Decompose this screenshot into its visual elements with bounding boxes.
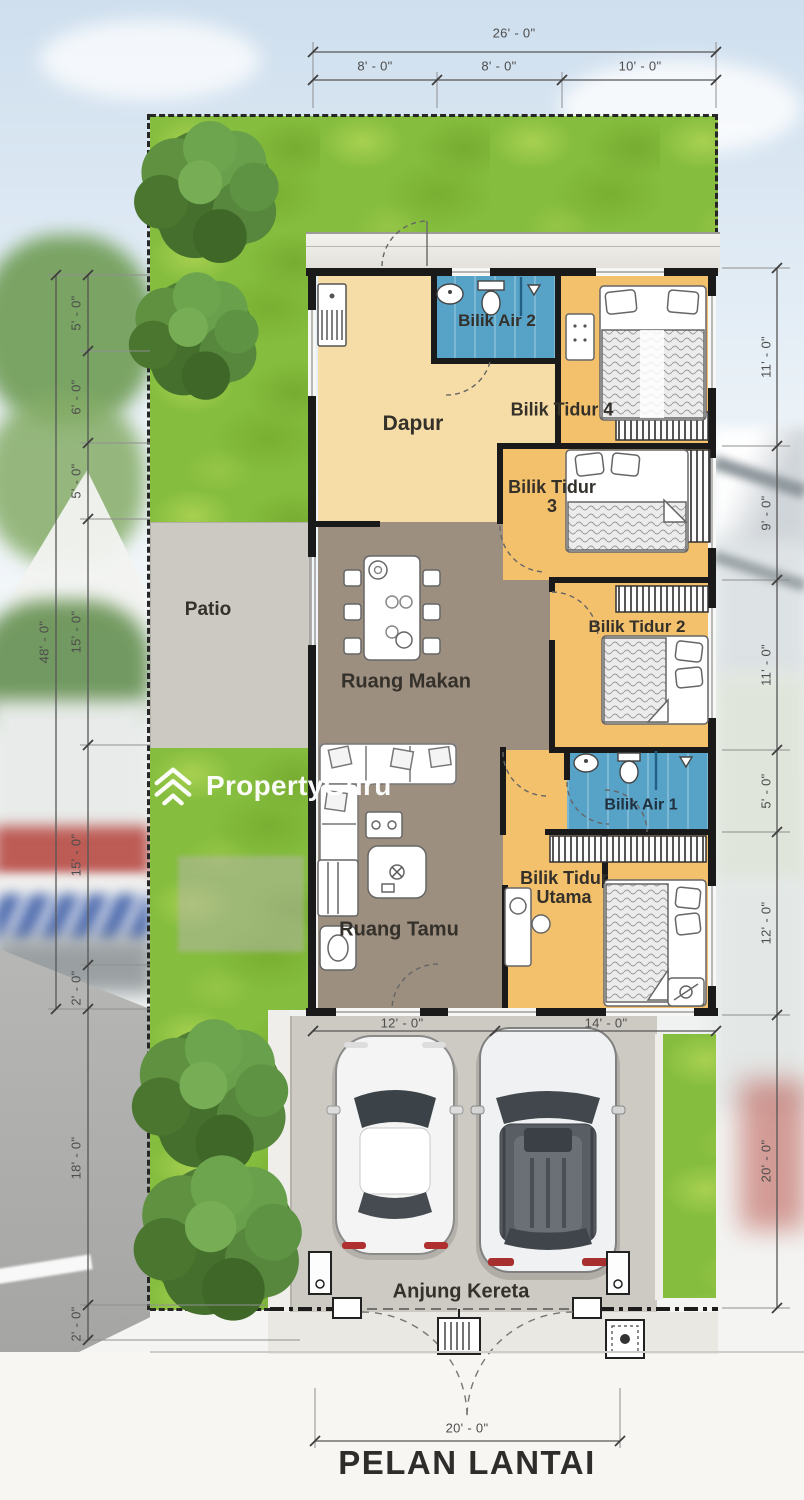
label-bilik-tidur-utama-line1: Bilik Tidur	[520, 869, 608, 888]
dim-bottom-2: 14' - 0"	[585, 1016, 628, 1031]
dim-left-lower-2: 2' - 0"	[69, 1306, 84, 1341]
dim-left-3: 5' - 0"	[69, 463, 84, 498]
floor-plan-image: 26' - 0" 8' - 0" 8' - 0" 10' - 0" 48' - …	[0, 0, 804, 1500]
label-bilik-tidur-3-line2: 3	[508, 497, 596, 516]
dim-top-3: 10' - 0"	[619, 59, 662, 74]
label-bilik-tidur-utama-line2: Utama	[520, 888, 608, 907]
dim-left-5: 15' - 0"	[69, 834, 84, 877]
dim-left-1: 5' - 0"	[69, 295, 84, 330]
dim-left-6: 2' - 0"	[69, 970, 84, 1005]
tree-icon	[129, 121, 302, 1321]
car-suv-icon	[471, 1028, 625, 1280]
dim-gate: 20' - 0"	[446, 1421, 489, 1436]
fridge-icon	[318, 284, 346, 346]
dim-right-1: 11' - 0"	[759, 336, 774, 378]
label-bilik-air-1: Bilik Air 1	[604, 798, 677, 815]
dim-top-2: 8' - 0"	[481, 59, 516, 74]
dim-right-3: 11' - 0"	[759, 644, 774, 686]
label-patio: Patio	[185, 600, 231, 620]
dim-left-4: 15' - 0"	[69, 611, 84, 654]
dim-right-4: 5' - 0"	[759, 773, 774, 808]
dim-bottom-1: 12' - 0"	[381, 1016, 424, 1031]
propertyguru-logo-icon	[150, 763, 196, 809]
label-anjung-kereta: Anjung Kereta	[393, 1282, 530, 1303]
dining-table-icon	[344, 556, 440, 660]
label-bilik-tidur-3: Bilik Tidur 3	[508, 478, 596, 516]
label-bilik-air-2: Bilik Air 2	[458, 312, 536, 330]
dim-left-total: 48' - 0"	[37, 621, 52, 664]
dim-top-total: 26' - 0"	[493, 26, 536, 41]
label-ruang-makan: Ruang Makan	[341, 672, 471, 693]
plan-linework	[0, 0, 804, 1500]
dim-right-2: 9' - 0"	[759, 495, 774, 530]
watermark-brand-text: PropertyGuru	[206, 770, 392, 802]
label-bilik-tidur-4: Bilik Tidur 4	[511, 401, 614, 420]
tv-console-icon	[318, 860, 358, 970]
dim-left-lower-1: 18' - 0"	[69, 1137, 84, 1180]
label-ruang-tamu: Ruang Tamu	[339, 920, 459, 941]
page-title: PELAN LANTAI	[338, 1444, 596, 1482]
coffee-table-icon	[366, 812, 426, 898]
dim-top-1: 8' - 0"	[357, 59, 392, 74]
dim-right-6: 20' - 0"	[759, 1140, 774, 1183]
label-bilik-tidur-2: Bilik Tidur 2	[589, 618, 686, 636]
label-bilik-tidur-3-line1: Bilik Tidur	[508, 478, 596, 497]
dim-right-5: 12' - 0"	[759, 902, 774, 945]
label-bilik-tidur-utama: Bilik Tidur Utama	[520, 869, 608, 907]
watermark: PropertyGuru	[150, 763, 392, 809]
dim-left-2: 6' - 0"	[69, 379, 84, 414]
patio-sliding-door	[310, 557, 315, 645]
car-white-icon	[327, 1036, 463, 1260]
label-dapur: Dapur	[383, 413, 444, 435]
gate-box-icon	[438, 1309, 480, 1354]
